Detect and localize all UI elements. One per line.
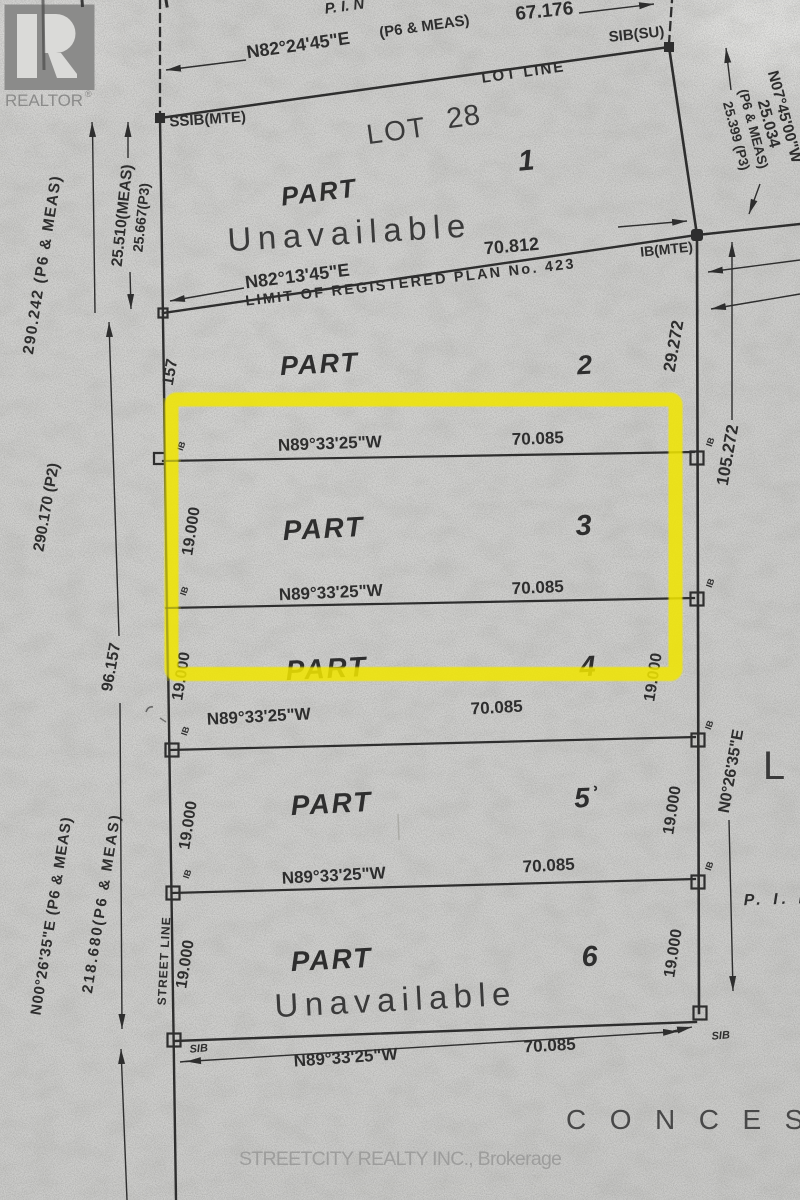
svg-text:PART: PART bbox=[282, 511, 366, 546]
svg-text:SIB: SIB bbox=[711, 1029, 730, 1043]
svg-text:CONCES: CONCES bbox=[566, 1104, 800, 1135]
svg-text:P. I. N: P. I. N bbox=[743, 890, 800, 909]
svg-text:2: 2 bbox=[575, 350, 593, 381]
svg-text:1: 1 bbox=[517, 144, 536, 177]
svg-text:70.085: 70.085 bbox=[523, 1035, 576, 1057]
svg-text:PART: PART bbox=[290, 942, 374, 977]
svg-text:REALTOR: REALTOR bbox=[5, 91, 84, 110]
svg-text:STREETCITY REALTY INC., Broker: STREETCITY REALTY INC., Brokerage bbox=[239, 1148, 562, 1170]
svg-text:PART: PART bbox=[279, 347, 360, 381]
svg-text:5ʾ: 5ʾ bbox=[573, 781, 599, 813]
svg-text:L: L bbox=[763, 744, 785, 788]
svg-text:70.085: 70.085 bbox=[511, 428, 564, 449]
svg-text:3: 3 bbox=[575, 510, 593, 543]
svg-text:SIB: SIB bbox=[189, 1042, 208, 1056]
svg-text:6: 6 bbox=[581, 941, 600, 974]
svg-text:N89°33'25"W: N89°33'25"W bbox=[278, 432, 384, 455]
svg-text:28: 28 bbox=[445, 99, 483, 135]
svg-text:70.085: 70.085 bbox=[522, 855, 575, 877]
svg-text:PART: PART bbox=[290, 786, 374, 821]
svg-text:70.085: 70.085 bbox=[511, 577, 564, 598]
svg-text:®: ® bbox=[85, 89, 92, 99]
svg-text:70.085: 70.085 bbox=[470, 697, 523, 719]
